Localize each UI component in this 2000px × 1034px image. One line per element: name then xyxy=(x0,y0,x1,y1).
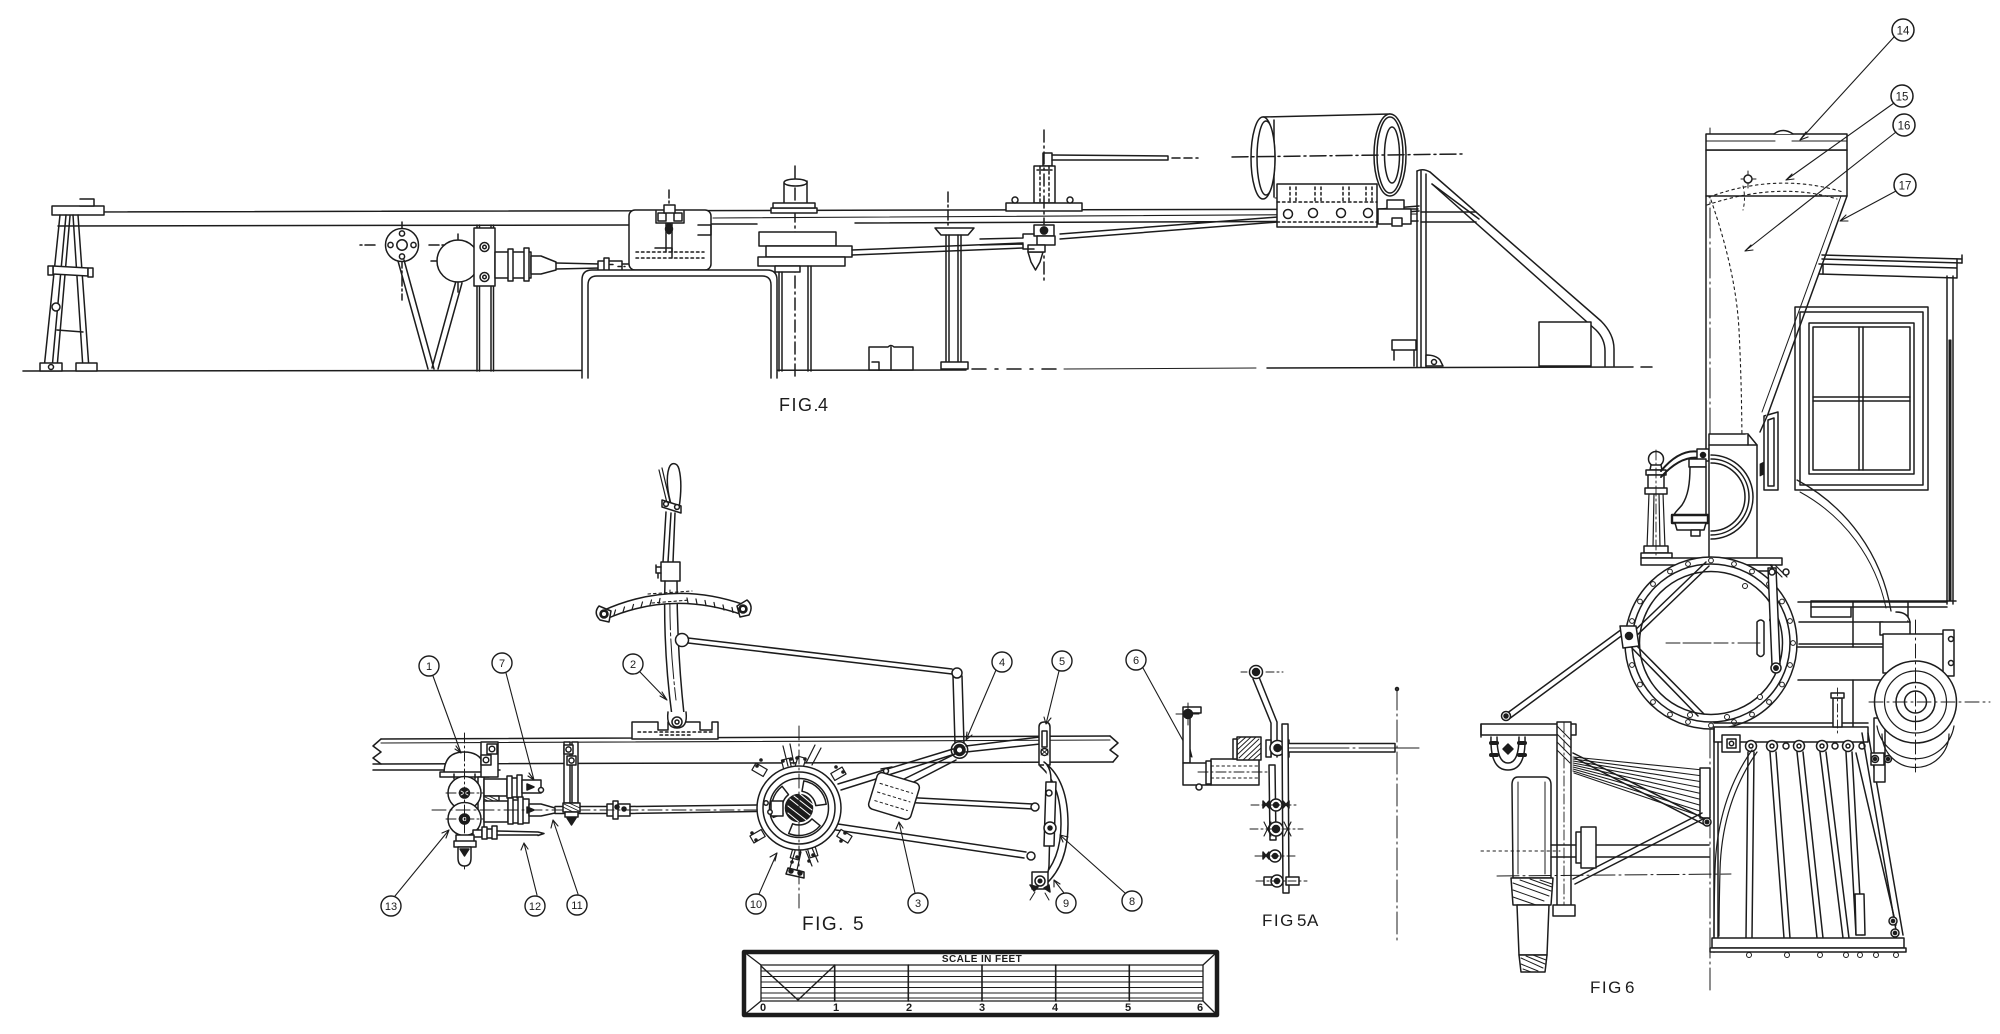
svg-text:FIG: FIG xyxy=(1262,911,1295,930)
svg-text:FIG: FIG xyxy=(1590,978,1623,997)
svg-text:12: 12 xyxy=(529,901,541,913)
svg-text:6: 6 xyxy=(1625,978,1634,997)
svg-text:9: 9 xyxy=(1063,898,1069,910)
svg-text:5: 5 xyxy=(1059,656,1065,668)
svg-text:1: 1 xyxy=(833,1002,839,1014)
svg-text:10: 10 xyxy=(750,899,762,911)
svg-text:16: 16 xyxy=(1898,121,1911,133)
svg-text:5: 5 xyxy=(853,914,864,935)
svg-text:6: 6 xyxy=(1197,1002,1203,1014)
svg-text:FIG.: FIG. xyxy=(802,914,845,935)
svg-text:6: 6 xyxy=(1133,655,1139,667)
svg-text:14: 14 xyxy=(1897,26,1910,38)
svg-text:15: 15 xyxy=(1896,92,1909,104)
svg-text:11: 11 xyxy=(571,900,582,912)
svg-text:1: 1 xyxy=(426,661,432,673)
svg-text:7: 7 xyxy=(499,658,505,670)
svg-text:5: 5 xyxy=(1125,1002,1131,1014)
svg-text:5A: 5A xyxy=(1297,911,1319,930)
svg-text:3: 3 xyxy=(915,898,921,910)
svg-text:2: 2 xyxy=(630,659,636,671)
svg-text:FIG.: FIG. xyxy=(779,395,820,415)
svg-text:4: 4 xyxy=(999,657,1005,669)
svg-text:3: 3 xyxy=(979,1002,985,1014)
svg-text:0: 0 xyxy=(760,1002,766,1014)
svg-text:13: 13 xyxy=(385,901,397,913)
svg-text:8: 8 xyxy=(1129,896,1135,908)
svg-text:17: 17 xyxy=(1899,181,1912,193)
svg-text:4: 4 xyxy=(1052,1002,1059,1014)
svg-text:4: 4 xyxy=(818,395,828,415)
svg-text:2: 2 xyxy=(906,1002,912,1014)
svg-text:SCALE IN FEET: SCALE IN FEET xyxy=(942,954,1022,965)
